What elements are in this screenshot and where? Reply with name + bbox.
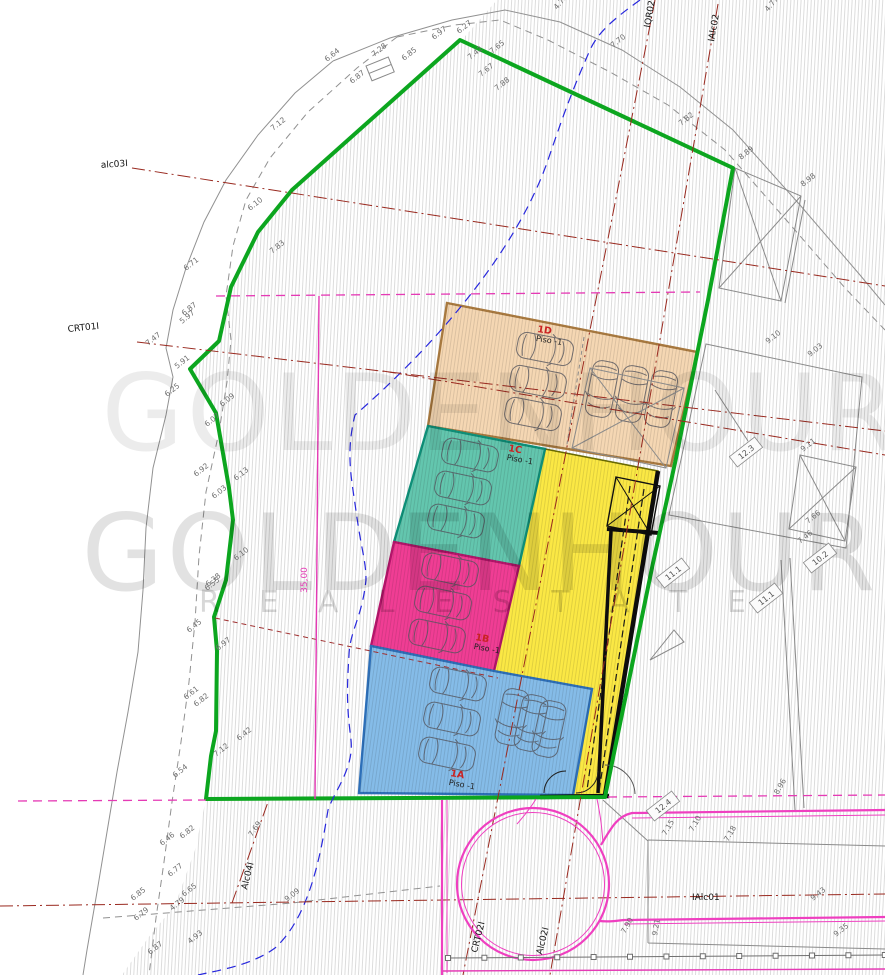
elevation-value: 7.28 (370, 41, 389, 59)
fence-post-marker (773, 953, 778, 958)
fence-post-marker (555, 955, 560, 960)
elevation-value: 6.87 (348, 68, 367, 86)
fence-post-marker (482, 955, 487, 960)
axis-label: 35,00 (300, 567, 310, 593)
elevation-value: 6.71 (182, 255, 201, 273)
fence-post-marker (737, 954, 742, 959)
elevation-value: 6.54 (171, 762, 190, 780)
watermark-brand-row2: GOLDENHOUR (102, 352, 885, 475)
fence-post-marker (810, 953, 815, 958)
elevation-value: 6.46 (158, 830, 177, 848)
site-plan-page: GOLDENHOUR GOLDENHOUR R E A L E S T A T … (0, 0, 885, 975)
fence-post-marker (664, 954, 669, 959)
fence-post-marker (591, 955, 596, 960)
fence-post-marker (628, 954, 633, 959)
elevation-value: 7.12 (269, 115, 288, 133)
watermark-tagline: R E A L E S T A T E (199, 585, 761, 620)
axis-label: CRT01I (67, 322, 99, 335)
axis-label: IAlc01 (692, 893, 720, 903)
elevation-value: 6.85 (129, 885, 148, 903)
elevation-value: 6.10 (246, 195, 265, 213)
elevation-value: 6.85 (400, 45, 419, 63)
elevation-value: 7.47 (144, 330, 163, 348)
fence-post-marker (518, 955, 523, 960)
elevation-value: 6.77 (166, 861, 185, 879)
fence-post-marker (446, 956, 451, 961)
elevation-value: 6.82 (178, 823, 197, 841)
axis-label: alc03I (100, 159, 128, 171)
small-structure-top (366, 57, 394, 81)
fence-post-marker (700, 954, 705, 959)
elevation-value: 6.64 (323, 46, 342, 64)
site-plan-canvas: GOLDENHOUR GOLDENHOUR R E A L E S T A T … (0, 0, 885, 975)
fence-post-marker (846, 953, 851, 958)
elevation-value: 6.79 (132, 905, 151, 923)
